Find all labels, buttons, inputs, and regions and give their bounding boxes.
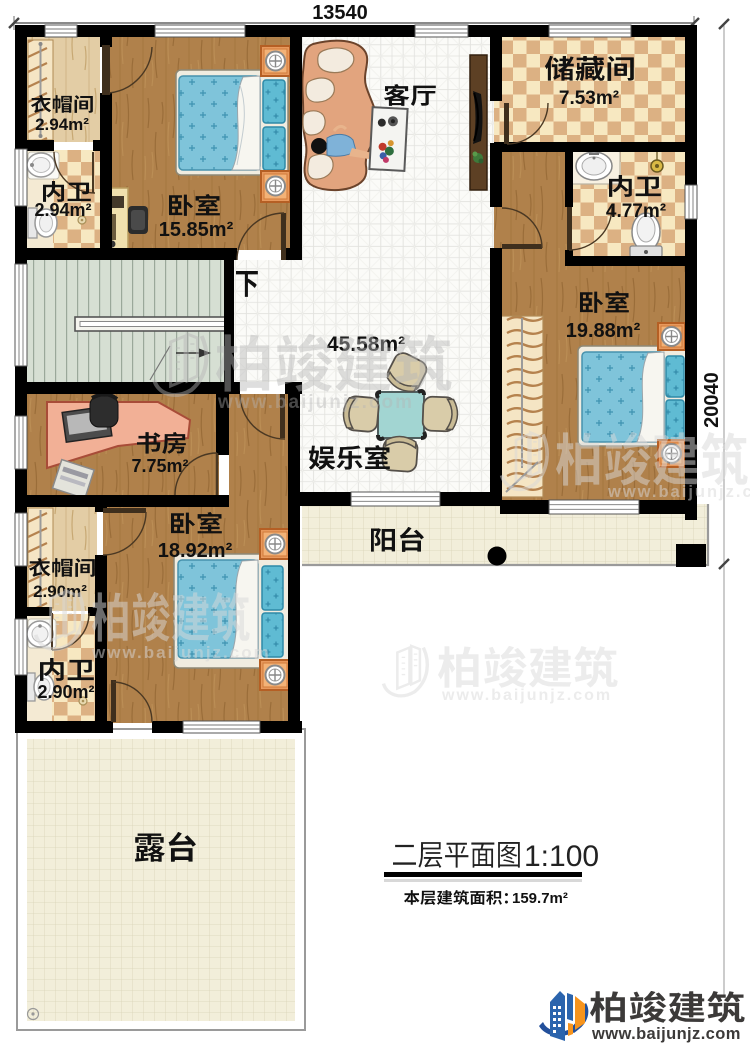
svg-text:7.75m²: 7.75m² — [131, 456, 188, 476]
svg-text:20040: 20040 — [701, 372, 723, 428]
svg-text:www.baijunjz.com: www.baijunjz.com — [441, 687, 612, 704]
svg-text:2.94m²: 2.94m² — [34, 200, 91, 220]
svg-text:19.88m²: 19.88m² — [566, 320, 641, 342]
svg-text:159.7m²: 159.7m² — [512, 890, 568, 907]
svg-text:4.77m²: 4.77m² — [606, 201, 666, 222]
svg-text:13540: 13540 — [312, 2, 368, 24]
svg-text:www.baijunjz.com: www.baijunjz.com — [91, 643, 271, 662]
svg-text:www.baijunjz.com: www.baijunjz.com — [217, 392, 414, 413]
svg-text:18.92m²: 18.92m² — [158, 540, 233, 562]
svg-text:www.baijunjz.com: www.baijunjz.com — [607, 483, 750, 501]
svg-text:2.94m²: 2.94m² — [35, 115, 89, 134]
svg-text:1:100: 1:100 — [524, 840, 599, 873]
svg-text:www.baijunjz.com: www.baijunjz.com — [591, 1025, 741, 1043]
svg-text:15.85m²: 15.85m² — [159, 219, 234, 241]
svg-text:7.53m²: 7.53m² — [559, 88, 619, 109]
svg-text:2.90m²: 2.90m² — [37, 682, 94, 702]
